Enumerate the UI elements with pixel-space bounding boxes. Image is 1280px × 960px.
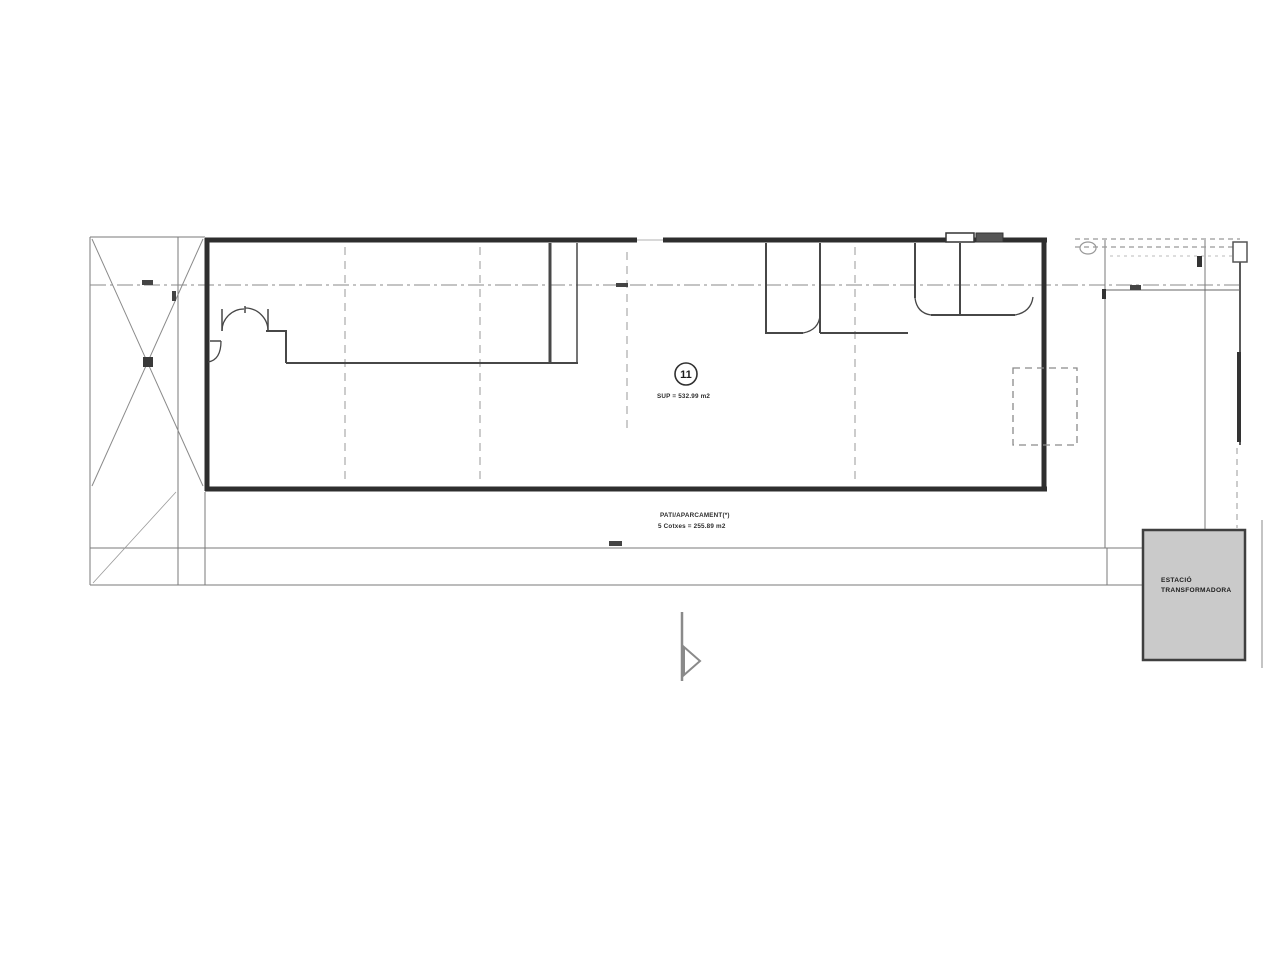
dimension-mark xyxy=(1197,256,1202,267)
north-arrow xyxy=(682,612,700,681)
dimension-mark xyxy=(1130,285,1141,290)
sup-area-label: SUP = 532.99 m2 xyxy=(657,393,710,400)
parking-label-line2: 5 Cotxes = 255.89 m2 xyxy=(658,523,726,530)
double-door-arc-right xyxy=(245,308,268,331)
unit-number-badge: 11 xyxy=(680,369,692,381)
x-brace-area xyxy=(92,239,203,583)
double-door-arc-left xyxy=(222,309,244,331)
transformer-station-box xyxy=(1143,530,1245,660)
transformer-station: ESTACIÓ TRANSFORMADORA xyxy=(1143,530,1245,660)
door-arc-2 xyxy=(915,298,931,315)
grid-lines xyxy=(345,247,855,483)
dimension-mark xyxy=(172,291,176,301)
top-wall-window-1 xyxy=(946,233,974,242)
x-brace-node-mark xyxy=(143,357,153,367)
floor-plan-drawing: ESTACIÓ TRANSFORMADORA 11 SUP = 532.99 m… xyxy=(0,0,1280,960)
dimension-mark xyxy=(609,541,622,546)
corner-column xyxy=(1233,242,1247,262)
dimension-mark xyxy=(1102,289,1106,299)
parking-label-line1: PATI/APARCAMENT(*) xyxy=(660,512,730,519)
interior-partitions-left xyxy=(208,243,578,364)
transformer-label-line2: TRANSFORMADORA xyxy=(1161,587,1232,594)
dimension-mark xyxy=(616,283,628,287)
top-wall-window-2 xyxy=(976,233,1003,242)
door-arc-1 xyxy=(803,315,820,333)
unit-annotation: 11 SUP = 532.99 m2 xyxy=(657,363,710,400)
leftwall-door-arc xyxy=(208,341,221,362)
site-boundary xyxy=(90,237,1143,585)
x-brace-diagonal-3 xyxy=(93,492,176,583)
leader-loop xyxy=(1080,242,1096,254)
arrow-head xyxy=(684,647,700,675)
door-arc-3 xyxy=(1015,297,1033,315)
scanned-floor-plan-sheet: ESTACIÓ TRANSFORMADORA 11 SUP = 532.99 m… xyxy=(0,0,1280,960)
dimension-mark xyxy=(142,280,153,285)
building-outline xyxy=(205,238,1047,491)
parking-annotation: PATI/APARCAMENT(*) 5 Cotxes = 255.89 m2 xyxy=(658,512,730,530)
interior-partitions-right xyxy=(766,243,1033,334)
transformer-label-line1: ESTACIÓ xyxy=(1161,575,1192,584)
